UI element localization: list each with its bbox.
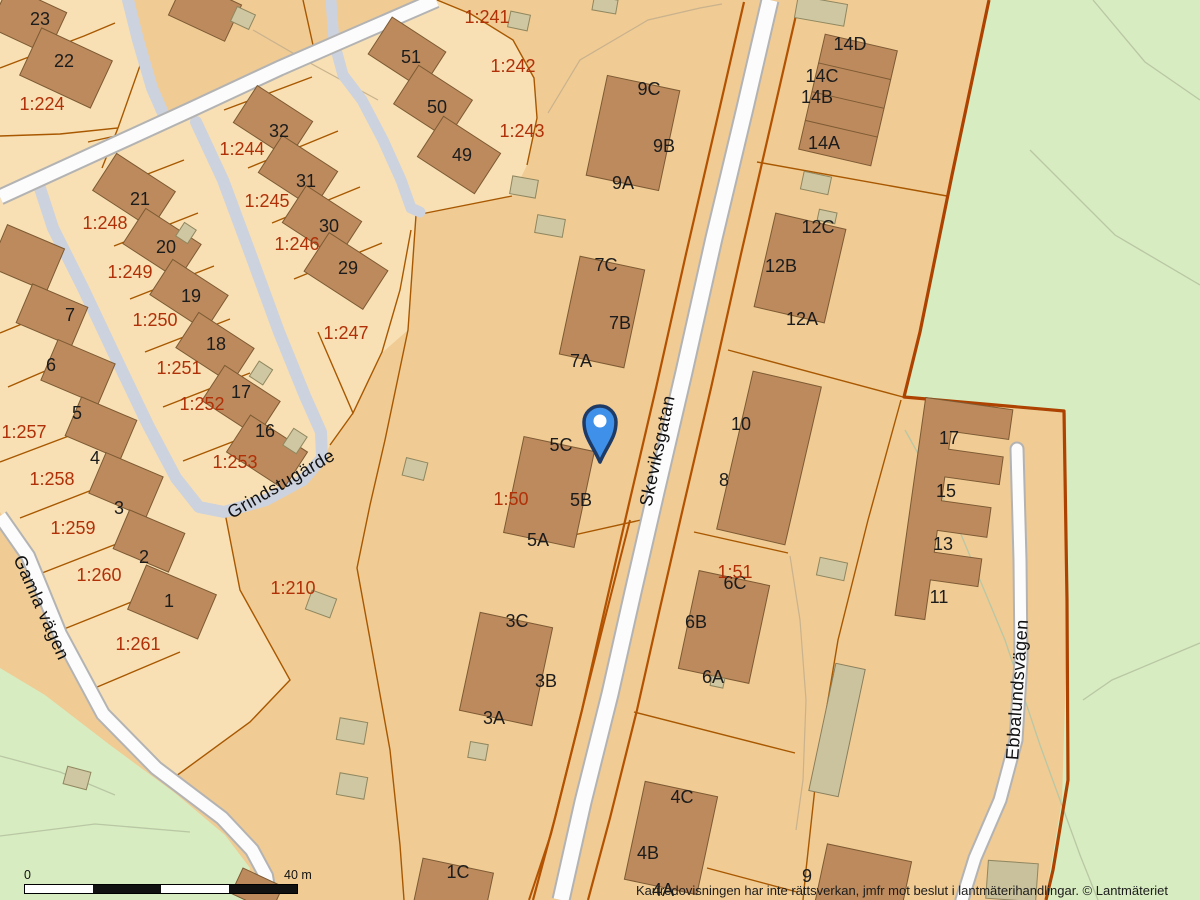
building-number-label-14D: 14D — [833, 34, 866, 54]
parcel-number-label-1:257: 1:257 — [1, 422, 46, 442]
building-number-label-14B: 14B — [801, 87, 833, 107]
building-number-label-7: 7 — [65, 305, 75, 325]
building-number-label-32: 32 — [269, 121, 289, 141]
building-number-label-6: 6 — [46, 355, 56, 375]
parcel-number-label-1:249: 1:249 — [107, 262, 152, 282]
parcel-number-label-1:261: 1:261 — [115, 634, 160, 654]
map-attribution: Kartredovisningen har inte rättsverkan, … — [636, 883, 1168, 898]
map-canvas[interactable]: 23225150493231302921201918171676543219C9… — [0, 0, 1200, 900]
building-number-label-51: 51 — [401, 47, 421, 67]
building-number-label-3A: 3A — [483, 708, 505, 728]
building-number-label-7B: 7B — [609, 313, 631, 333]
building-number-label-12A: 12A — [786, 309, 818, 329]
parcel-number-label-1:245: 1:245 — [244, 191, 289, 211]
scale-segment — [93, 885, 161, 893]
scale-segment — [229, 885, 297, 893]
building-number-label-18: 18 — [206, 334, 226, 354]
building-number-label-16: 16 — [255, 421, 275, 441]
building-number-label-12B: 12B — [765, 256, 797, 276]
building-number-label-50: 50 — [427, 97, 447, 117]
building-number-label-9B: 9B — [653, 136, 675, 156]
parcel-number-label-1:246: 1:246 — [274, 234, 319, 254]
parcel-number-label-1:243: 1:243 — [499, 121, 544, 141]
building-number-label-19: 19 — [181, 286, 201, 306]
building-number-label-3: 3 — [114, 498, 124, 518]
parcel-number-label-1:244: 1:244 — [219, 139, 264, 159]
building-number-label-5A: 5A — [527, 530, 549, 550]
parcel-number-label-1:248: 1:248 — [82, 213, 127, 233]
parcel-number-label-1:258: 1:258 — [29, 469, 74, 489]
building-number-label-7A: 7A — [570, 351, 592, 371]
parcel-number-label-1:251: 1:251 — [156, 358, 201, 378]
building-number-label-17: 17 — [231, 382, 251, 402]
building-number-label-6B: 6B — [685, 612, 707, 632]
parcel-number-label-1:252: 1:252 — [179, 394, 224, 414]
map-view: 23225150493231302921201918171676543219C9… — [0, 0, 1200, 900]
building-number-label-17: 17 — [939, 428, 959, 448]
building-number-label-22: 22 — [54, 51, 74, 71]
building-number-label-13: 13 — [933, 534, 953, 554]
building-number-label-29: 29 — [338, 258, 358, 278]
building-number-label-5C: 5C — [549, 435, 572, 455]
building-number-label-21: 21 — [130, 189, 150, 209]
building-number-label-12C: 12C — [801, 217, 834, 237]
building-number-label-8: 8 — [719, 470, 729, 490]
parcel-number-label-1:242: 1:242 — [490, 56, 535, 76]
building-number-label-1: 1 — [164, 591, 174, 611]
building-number-label-15: 15 — [936, 481, 956, 501]
building-number-label-4: 4 — [90, 448, 100, 468]
building-number-label-6A: 6A — [702, 667, 724, 687]
parcel-number-label-1:247: 1:247 — [323, 323, 368, 343]
building-number-label-49: 49 — [452, 145, 472, 165]
building-number-label-3C: 3C — [505, 611, 528, 631]
building-number-label-14A: 14A — [808, 133, 840, 153]
building-number-label-4C: 4C — [670, 787, 693, 807]
building-number-label-1C: 1C — [446, 862, 469, 882]
building-number-label-3B: 3B — [535, 671, 557, 691]
scale-segment — [25, 885, 93, 893]
scale-start-label: 0 — [24, 869, 31, 882]
building-number-label-23: 23 — [30, 9, 50, 29]
building-number-label-14C: 14C — [805, 66, 838, 86]
parcel-number-label-1:241: 1:241 — [464, 7, 509, 27]
building-number-label-31: 31 — [296, 171, 316, 191]
building-number-label-9C: 9C — [637, 79, 660, 99]
building-number-label-5: 5 — [72, 403, 82, 423]
parcel-number-label-1:250: 1:250 — [132, 310, 177, 330]
building-number-label-7C: 7C — [594, 255, 617, 275]
building-number-label-5B: 5B — [570, 490, 592, 510]
building-number-label-9A: 9A — [612, 173, 634, 193]
parcel-number-label-1:224: 1:224 — [19, 94, 64, 114]
parcel-number-label-1:260: 1:260 — [76, 565, 121, 585]
scale-end-label: 40 m — [284, 869, 312, 882]
parcel-number-label-1:51: 1:51 — [717, 562, 752, 582]
building-number-label-20: 20 — [156, 237, 176, 257]
scale-bar — [24, 884, 298, 894]
building-number-label-2: 2 — [139, 547, 149, 567]
building-number-label-4B: 4B — [637, 843, 659, 863]
parcel-number-label-1:50: 1:50 — [493, 489, 528, 509]
parcel-number-label-1:253: 1:253 — [212, 452, 257, 472]
building-number-label-30: 30 — [319, 216, 339, 236]
parcel-number-label-1:210: 1:210 — [270, 578, 315, 598]
pin-center-dot — [594, 415, 607, 428]
scale-segment — [161, 885, 229, 893]
building-number-label-10: 10 — [731, 414, 751, 434]
building-number-label-11: 11 — [930, 587, 949, 607]
parcel-number-label-1:259: 1:259 — [50, 518, 95, 538]
